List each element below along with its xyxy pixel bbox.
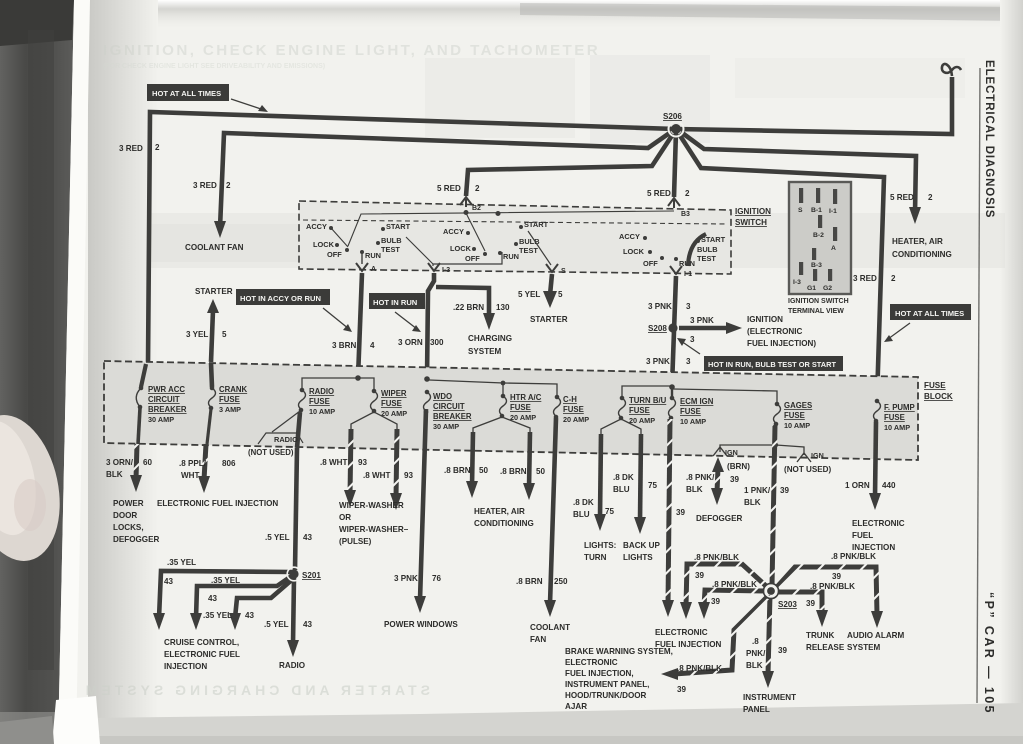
svg-text:3 RED: 3 RED [853, 274, 877, 283]
svg-text:FUSE: FUSE [510, 403, 531, 412]
svg-text:FUEL INJECTION,: FUEL INJECTION, [565, 669, 634, 678]
svg-text:75: 75 [605, 507, 615, 516]
svg-text:INJECTION: INJECTION [164, 662, 207, 671]
svg-text:I-3: I-3 [442, 267, 450, 274]
svg-text:FUSE: FUSE [884, 413, 905, 422]
svg-text:BULB: BULB [519, 237, 540, 246]
svg-text:39: 39 [778, 646, 788, 655]
svg-text:BULB: BULB [697, 245, 718, 254]
svg-text:10 AMP: 10 AMP [884, 423, 910, 432]
svg-text:RADIO: RADIO [274, 435, 298, 444]
svg-text:3: 3 [690, 335, 695, 344]
svg-text:FUSE: FUSE [629, 406, 650, 415]
svg-text:ELECTRONIC FUEL: ELECTRONIC FUEL [164, 650, 240, 659]
svg-text:COOLANT FAN: COOLANT FAN [185, 243, 244, 252]
svg-text:FUEL: FUEL [852, 531, 873, 540]
svg-text:10 AMP: 10 AMP [784, 421, 810, 430]
svg-text:RELEASE: RELEASE [806, 643, 845, 652]
svg-text:S203: S203 [778, 600, 797, 609]
svg-text:IGNITION, CHECK ENGINE LIGHT,: IGNITION, CHECK ENGINE LIGHT, AND TACHOM… [103, 42, 600, 59]
svg-text:RADIO: RADIO [279, 661, 305, 670]
svg-text:5 YEL: 5 YEL [518, 290, 540, 299]
svg-text:OR: OR [339, 513, 351, 522]
svg-text:LIGHTS: LIGHTS [623, 553, 653, 562]
svg-text:TEST: TEST [381, 245, 400, 254]
svg-text:10 AMP: 10 AMP [309, 407, 335, 416]
svg-text:3 ORN/: 3 ORN/ [106, 458, 134, 467]
svg-text:LOCK: LOCK [623, 247, 645, 256]
svg-text:SWITCH: SWITCH [735, 218, 767, 227]
svg-text:INSTRUMENT PANEL,: INSTRUMENT PANEL, [565, 680, 649, 689]
svg-text:HOT AT ALL TIMES: HOT AT ALL TIMES [152, 89, 221, 98]
svg-text:.8 WHT: .8 WHT [363, 471, 390, 480]
svg-text:FUSE: FUSE [680, 407, 701, 416]
svg-text:DOOR: DOOR [113, 511, 137, 520]
svg-text:FUSE: FUSE [924, 381, 946, 390]
svg-text:TERMINAL VIEW: TERMINAL VIEW [788, 308, 844, 315]
svg-text:(ELECTRONIC: (ELECTRONIC [747, 327, 802, 336]
svg-text:HOOD/TRUNK/DOOR: HOOD/TRUNK/DOOR [565, 691, 647, 700]
svg-text:3 RED: 3 RED [193, 181, 217, 190]
svg-text:ACCY: ACCY [619, 232, 640, 241]
svg-text:HTR A/C: HTR A/C [510, 393, 542, 402]
svg-text:ELECTRONIC: ELECTRONIC [655, 628, 708, 637]
svg-text:LOCKS,: LOCKS, [113, 523, 144, 532]
svg-text:RADIO: RADIO [309, 387, 334, 396]
svg-text:IGNITION SWITCH: IGNITION SWITCH [788, 298, 849, 305]
svg-text:2: 2 [685, 189, 690, 198]
svg-text:.5 YEL: .5 YEL [264, 620, 289, 629]
svg-text:130: 130 [496, 303, 510, 312]
svg-text:.8 BRN: .8 BRN [444, 466, 471, 475]
svg-text:CRANK: CRANK [219, 385, 248, 394]
svg-text:BLK: BLK [746, 661, 763, 670]
svg-text:30 AMP: 30 AMP [148, 415, 174, 424]
svg-text:3 PNK: 3 PNK [394, 574, 418, 583]
svg-text:.8 PNK/: .8 PNK/ [686, 473, 715, 482]
svg-text:2: 2 [928, 193, 933, 202]
svg-text:3: 3 [686, 357, 691, 366]
svg-text:BREAKER: BREAKER [433, 412, 472, 421]
svg-text:43: 43 [245, 611, 255, 620]
svg-text:I-1: I-1 [684, 271, 692, 278]
svg-text:INJECTION: INJECTION [852, 543, 895, 552]
svg-text:10 AMP: 10 AMP [680, 417, 706, 426]
svg-text:(FOR CHECK ENGINE LIGHT SEE DR: (FOR CHECK ENGINE LIGHT SEE DRIVEABILITY… [103, 63, 325, 70]
svg-text:A: A [371, 266, 376, 273]
svg-text:LOCK: LOCK [450, 244, 472, 253]
svg-text:.8 PNK/BLK: .8 PNK/BLK [712, 580, 757, 589]
svg-text:(NOT USED): (NOT USED) [248, 448, 294, 457]
svg-text:3: 3 [686, 302, 691, 311]
svg-text:5 RED: 5 RED [647, 189, 671, 198]
svg-text:I-1: I-1 [829, 208, 837, 215]
svg-text:ELECTRONIC: ELECTRONIC [565, 658, 618, 667]
svg-text:TEST: TEST [519, 246, 538, 255]
svg-text:39: 39 [730, 475, 740, 484]
svg-text:.8 BRN: .8 BRN [516, 577, 543, 586]
svg-text:39: 39 [780, 486, 790, 495]
svg-text:CIRCUIT: CIRCUIT [148, 395, 180, 404]
svg-text:IGN: IGN [811, 451, 824, 460]
svg-text:BACK UP: BACK UP [623, 541, 660, 550]
svg-text:76: 76 [432, 574, 442, 583]
svg-text:.8 DK: .8 DK [613, 473, 634, 482]
svg-text:5 RED: 5 RED [437, 184, 461, 193]
svg-text:OFF: OFF [327, 250, 342, 259]
svg-text:INSTRUMENT: INSTRUMENT [743, 693, 796, 702]
svg-text:WIPER: WIPER [381, 389, 407, 398]
svg-text:ELECTRICAL DIAGNOSIS: ELECTRICAL DIAGNOSIS [983, 60, 995, 218]
svg-text:PANEL: PANEL [743, 705, 770, 714]
svg-text:CRUISE CONTROL,: CRUISE CONTROL, [164, 638, 239, 647]
svg-text:PWR ACC: PWR ACC [148, 385, 185, 394]
svg-text:HOT IN ACCY OR RUN: HOT IN ACCY OR RUN [240, 294, 321, 303]
svg-text:FUSE: FUSE [219, 395, 240, 404]
svg-text:COOLANT: COOLANT [530, 623, 570, 632]
svg-text:43: 43 [208, 594, 218, 603]
svg-text:.8 PNK/BLK: .8 PNK/BLK [694, 553, 739, 562]
svg-text:S: S [798, 207, 803, 214]
svg-text:.8 PPL/: .8 PPL/ [179, 459, 207, 468]
svg-text:3 RED: 3 RED [119, 144, 143, 153]
svg-text:S206: S206 [663, 112, 682, 121]
svg-text:RUN: RUN [503, 252, 519, 261]
svg-text:.35 YEL: .35 YEL [203, 611, 232, 620]
svg-text:A: A [831, 245, 836, 252]
svg-text:300: 300 [430, 338, 444, 347]
svg-text:S: S [561, 268, 566, 275]
svg-text:CHARGING: CHARGING [468, 334, 512, 343]
svg-text:STARTER: STARTER [195, 287, 233, 296]
svg-text:250: 250 [554, 577, 568, 586]
svg-text:SYSTEM: SYSTEM [468, 347, 502, 356]
svg-text:4: 4 [370, 341, 375, 350]
svg-text:HEATER, AIR: HEATER, AIR [474, 507, 525, 516]
svg-text:(NOT USED): (NOT USED) [784, 465, 832, 474]
svg-text:GAGES: GAGES [784, 401, 812, 410]
svg-text:BLK: BLK [106, 470, 123, 479]
svg-text:43: 43 [303, 533, 313, 542]
svg-text:BLU: BLU [613, 485, 630, 494]
svg-text:75: 75 [648, 481, 658, 490]
svg-text:BLOCK: BLOCK [924, 392, 953, 401]
svg-text:20 AMP: 20 AMP [381, 409, 407, 418]
svg-text:BLK: BLK [686, 485, 703, 494]
svg-text:3 PNK: 3 PNK [690, 316, 714, 325]
svg-text:BULB: BULB [381, 236, 402, 245]
svg-text:HEATER, AIR: HEATER, AIR [892, 237, 943, 246]
svg-text:AJAR: AJAR [565, 702, 587, 711]
svg-text:BLU: BLU [573, 510, 590, 519]
svg-text:POWER: POWER [113, 499, 144, 508]
svg-text:LOCK: LOCK [313, 240, 335, 249]
svg-text:C-H: C-H [563, 395, 577, 404]
svg-text:TURN: TURN [584, 553, 607, 562]
svg-text:43: 43 [303, 620, 313, 629]
svg-text:B3: B3 [681, 211, 690, 218]
svg-text:HOT IN RUN: HOT IN RUN [373, 298, 417, 307]
svg-text:IGN: IGN [725, 448, 738, 457]
svg-text:BREAKER: BREAKER [148, 405, 187, 414]
svg-text:.8 PNK/BLK: .8 PNK/BLK [810, 582, 855, 591]
svg-text:20 AMP: 20 AMP [629, 416, 655, 425]
svg-text:.8 BRN: .8 BRN [500, 467, 527, 476]
svg-text:B-1: B-1 [811, 207, 822, 214]
svg-text:WDO: WDO [433, 392, 452, 401]
svg-text:G1: G1 [807, 285, 816, 292]
svg-text:F. PUMP: F. PUMP [884, 403, 915, 412]
svg-text:3 ORN: 3 ORN [398, 338, 423, 347]
svg-text:LIGHTS:: LIGHTS: [584, 541, 616, 550]
svg-text:2: 2 [155, 143, 160, 152]
svg-text:39: 39 [806, 599, 816, 608]
svg-text:3 PNK: 3 PNK [646, 357, 670, 366]
svg-text:39: 39 [677, 685, 687, 694]
svg-text:SYSTEM: SYSTEM [847, 643, 881, 652]
svg-text:START: START [524, 220, 549, 229]
svg-text:OFF: OFF [643, 259, 658, 268]
svg-text:440: 440 [882, 481, 896, 490]
svg-text:60: 60 [143, 458, 153, 467]
svg-text:93: 93 [358, 458, 368, 467]
svg-text:ELECTRONIC FUEL INJECTION: ELECTRONIC FUEL INJECTION [157, 499, 278, 508]
svg-text:CIRCUIT: CIRCUIT [433, 402, 465, 411]
svg-text:TEST: TEST [697, 254, 716, 263]
svg-text:.35 YEL: .35 YEL [167, 558, 196, 567]
svg-text:39: 39 [676, 508, 686, 517]
svg-text:3 YEL: 3 YEL [186, 330, 208, 339]
svg-text:5: 5 [558, 290, 563, 299]
svg-text:STARTER: STARTER [530, 315, 568, 324]
svg-text:3 PNK: 3 PNK [648, 302, 672, 311]
svg-text:G2: G2 [823, 285, 832, 292]
svg-text:5 RED: 5 RED [890, 193, 914, 202]
svg-text:1 PNK/: 1 PNK/ [744, 486, 771, 495]
svg-text:20 AMP: 20 AMP [563, 415, 589, 424]
svg-text:.35 YEL: .35 YEL [211, 576, 240, 585]
svg-text:39: 39 [711, 597, 721, 606]
svg-text:HOT IN RUN, BULB TEST OR START: HOT IN RUN, BULB TEST OR START [708, 360, 836, 369]
svg-text:S208: S208 [648, 324, 667, 333]
svg-text:ECM IGN: ECM IGN [680, 397, 714, 406]
svg-text:DEFOGGER: DEFOGGER [696, 514, 742, 523]
svg-text:FUSE: FUSE [784, 411, 805, 420]
svg-text:FUSE: FUSE [381, 399, 402, 408]
svg-text:WHT: WHT [181, 471, 199, 480]
svg-text:FAN: FAN [530, 635, 546, 644]
svg-text:2: 2 [891, 274, 896, 283]
svg-text:BLK: BLK [744, 498, 761, 507]
svg-text:START: START [386, 222, 411, 231]
svg-text:50: 50 [536, 467, 546, 476]
svg-text:B-3: B-3 [811, 262, 822, 269]
svg-text:DEFOGGER: DEFOGGER [113, 535, 159, 544]
svg-text:HOT AT ALL TIMES: HOT AT ALL TIMES [895, 309, 964, 318]
svg-text:PNK/: PNK/ [746, 649, 766, 658]
svg-text:ELECTRONIC: ELECTRONIC [852, 519, 905, 528]
svg-text:3 AMP: 3 AMP [219, 405, 241, 414]
svg-text:ACCY: ACCY [306, 222, 327, 231]
svg-text:2: 2 [226, 181, 231, 190]
svg-text:(BRN): (BRN) [727, 462, 750, 471]
svg-text:WIPER-WASHER–: WIPER-WASHER– [339, 525, 409, 534]
svg-text:OFF: OFF [465, 254, 480, 263]
svg-text:FUEL INJECTION): FUEL INJECTION) [747, 339, 816, 348]
svg-text:IGNITION: IGNITION [735, 207, 771, 216]
svg-text:5: 5 [222, 330, 227, 339]
svg-text:.22 BRN: .22 BRN [453, 303, 484, 312]
svg-text:CONDITIONING: CONDITIONING [474, 519, 534, 528]
svg-text:TURN B/U: TURN B/U [629, 396, 667, 405]
svg-text:FUSE: FUSE [309, 397, 330, 406]
svg-text:FUSE: FUSE [563, 405, 584, 414]
svg-text:IGNITION: IGNITION [747, 315, 783, 324]
svg-text:.8 PNK/BLK: .8 PNK/BLK [831, 552, 876, 561]
svg-text:93: 93 [404, 471, 414, 480]
svg-text:I-3: I-3 [793, 279, 801, 286]
svg-text:43: 43 [164, 577, 174, 586]
svg-text:B-2: B-2 [813, 232, 824, 239]
svg-text:30 AMP: 30 AMP [433, 422, 459, 431]
svg-text:WIPER-WASHER: WIPER-WASHER [339, 501, 404, 510]
svg-text:RUN: RUN [365, 251, 381, 260]
svg-text:S201: S201 [302, 571, 321, 580]
svg-text:50: 50 [479, 466, 489, 475]
svg-text:.8 WHT: .8 WHT [320, 458, 347, 467]
svg-text:.8 DK: .8 DK [573, 498, 594, 507]
svg-text:POWER WINDOWS: POWER WINDOWS [384, 620, 458, 629]
svg-text:TRUNK: TRUNK [806, 631, 834, 640]
svg-text:CONDITIONING: CONDITIONING [892, 250, 952, 259]
svg-text:B2: B2 [472, 205, 481, 212]
svg-text:BRAKE WARNING SYSTEM,: BRAKE WARNING SYSTEM, [565, 647, 673, 656]
svg-text:1 ORN: 1 ORN [845, 481, 870, 490]
svg-text:20 AMP: 20 AMP [510, 413, 536, 422]
svg-text:“P” CAR — 105: “P” CAR — 105 [982, 592, 996, 715]
svg-text:806: 806 [222, 459, 236, 468]
svg-text:39: 39 [695, 571, 705, 580]
svg-text:2: 2 [475, 184, 480, 193]
svg-text:.5 YEL: .5 YEL [265, 533, 290, 542]
svg-text:(PULSE): (PULSE) [339, 537, 372, 546]
svg-text:.8 PNK/BLK: .8 PNK/BLK [677, 664, 722, 673]
svg-text:39: 39 [832, 572, 842, 581]
svg-text:3 BRN: 3 BRN [332, 341, 356, 350]
svg-text:AUDIO ALARM: AUDIO ALARM [847, 631, 905, 640]
svg-text:.8: .8 [752, 637, 759, 646]
svg-text:ACCY: ACCY [443, 227, 464, 236]
svg-text:STARTER AND CHARGING SYSTEM: STARTER AND CHARGING SYSTEM [82, 682, 430, 698]
